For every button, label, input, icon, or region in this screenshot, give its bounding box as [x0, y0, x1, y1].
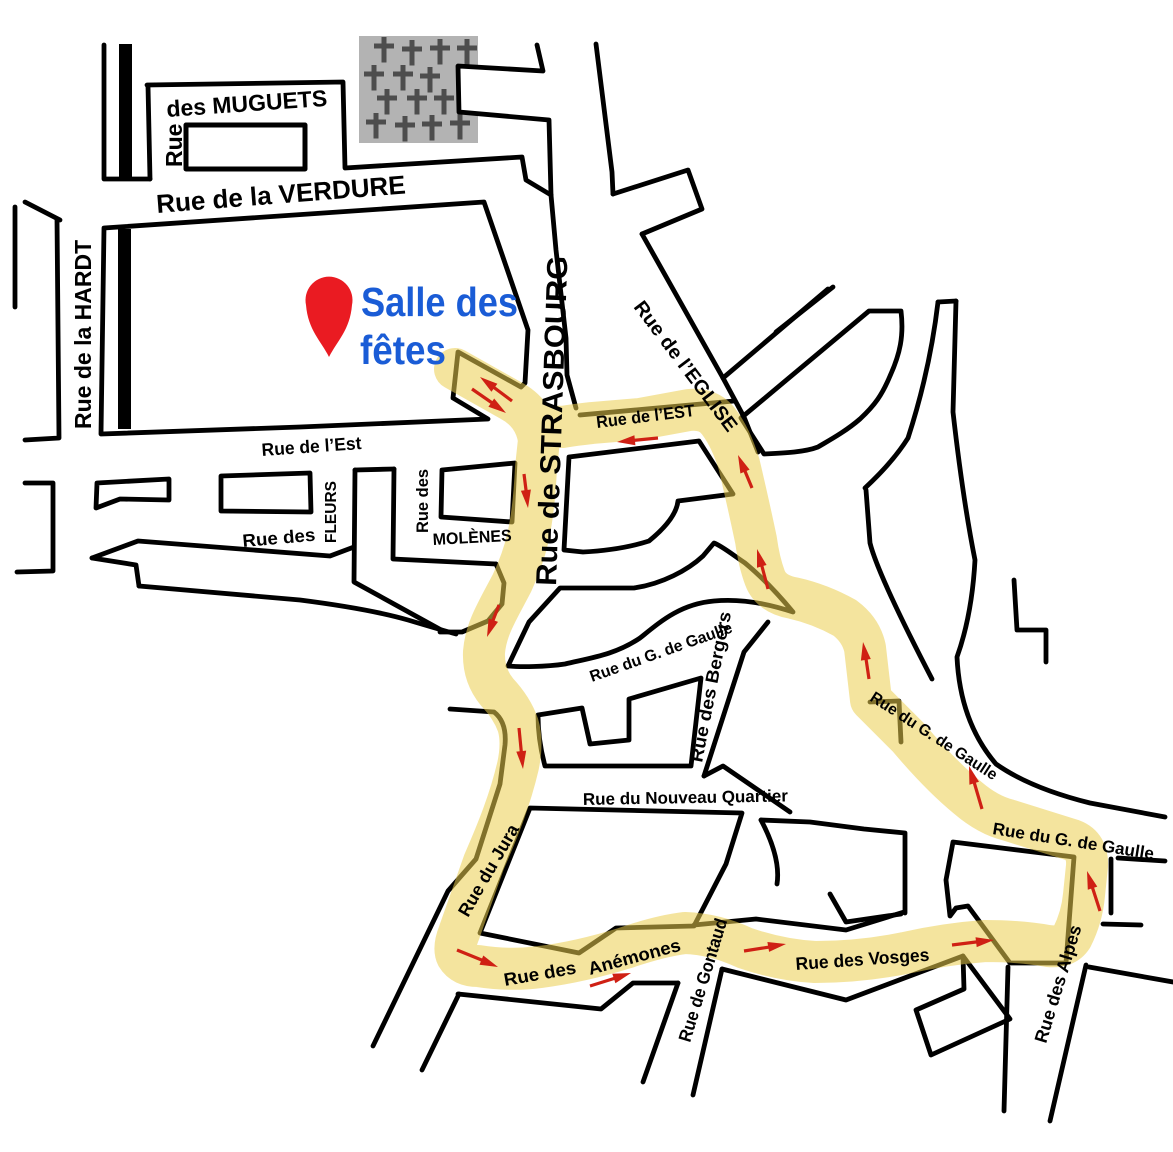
svg-text:Rue du Nouveau Quartier: Rue du Nouveau Quartier: [583, 786, 789, 809]
svg-text:Rue: Rue: [161, 124, 187, 167]
svg-text:Salle des: Salle des: [361, 279, 518, 325]
svg-text:Rue des: Rue des: [413, 469, 432, 533]
svg-text:Rue de la HARDT: Rue de la HARDT: [70, 240, 96, 429]
svg-text:FLEURS: FLEURS: [323, 481, 340, 543]
svg-text:fêtes: fêtes: [360, 327, 446, 373]
